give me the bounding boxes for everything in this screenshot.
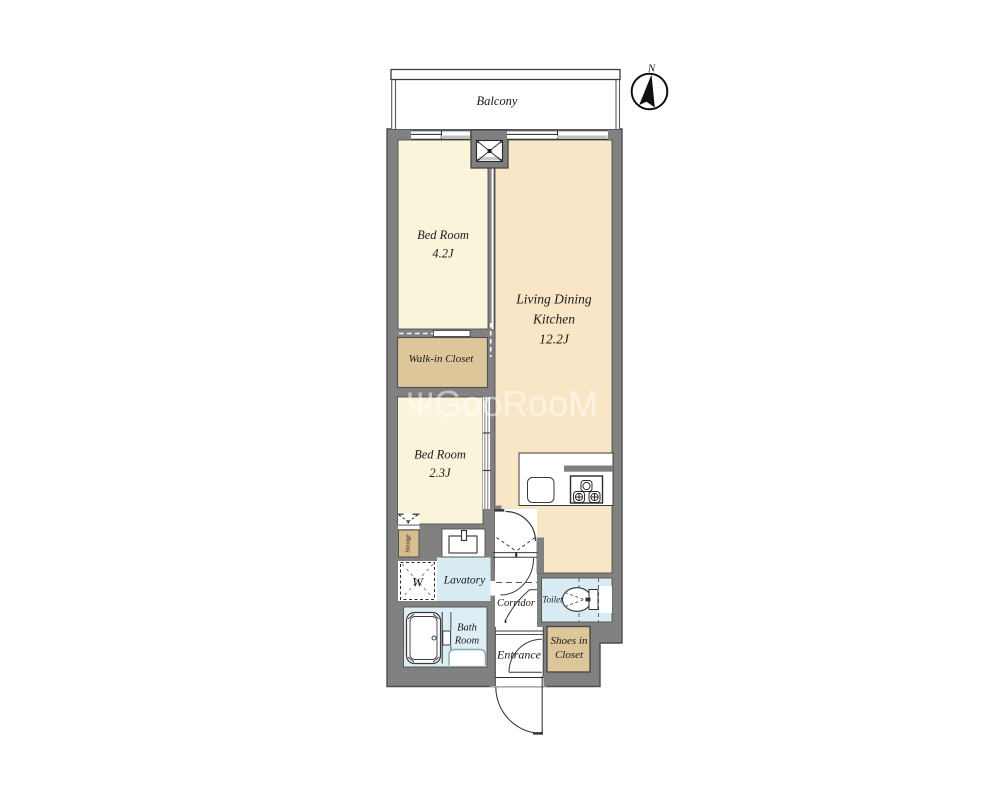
svg-text:Ψ: Ψ <box>406 386 434 424</box>
svg-text:Storage: Storage <box>406 534 412 553</box>
svg-text:Corridor: Corridor <box>497 598 536 609</box>
svg-text:Shoes in: Shoes in <box>551 635 588 647</box>
svg-text:Balcony: Balcony <box>477 94 518 108</box>
svg-text:Living Dining: Living Dining <box>515 292 592 307</box>
svg-text:Closet: Closet <box>555 649 584 661</box>
svg-text:W: W <box>412 575 424 590</box>
svg-text:Bed Room: Bed Room <box>414 448 466 462</box>
svg-text:Bath: Bath <box>457 623 477 634</box>
svg-text:Toilet: Toilet <box>542 595 563 605</box>
svg-text:Kitchen: Kitchen <box>532 312 575 327</box>
svg-text:Walk-in Closet: Walk-in Closet <box>409 353 475 365</box>
svg-text:12.2J: 12.2J <box>539 332 570 347</box>
svg-text:Lavatory: Lavatory <box>443 575 486 587</box>
svg-text:Bed Room: Bed Room <box>417 228 469 242</box>
svg-text:4.2J: 4.2J <box>432 247 455 261</box>
svg-text:2.3J: 2.3J <box>429 466 452 480</box>
svg-text:Entrance: Entrance <box>496 648 542 662</box>
svg-text:GooRooM: GooRooM <box>434 383 598 424</box>
svg-text:Room: Room <box>454 636 480 647</box>
svg-text:N: N <box>647 63 656 75</box>
